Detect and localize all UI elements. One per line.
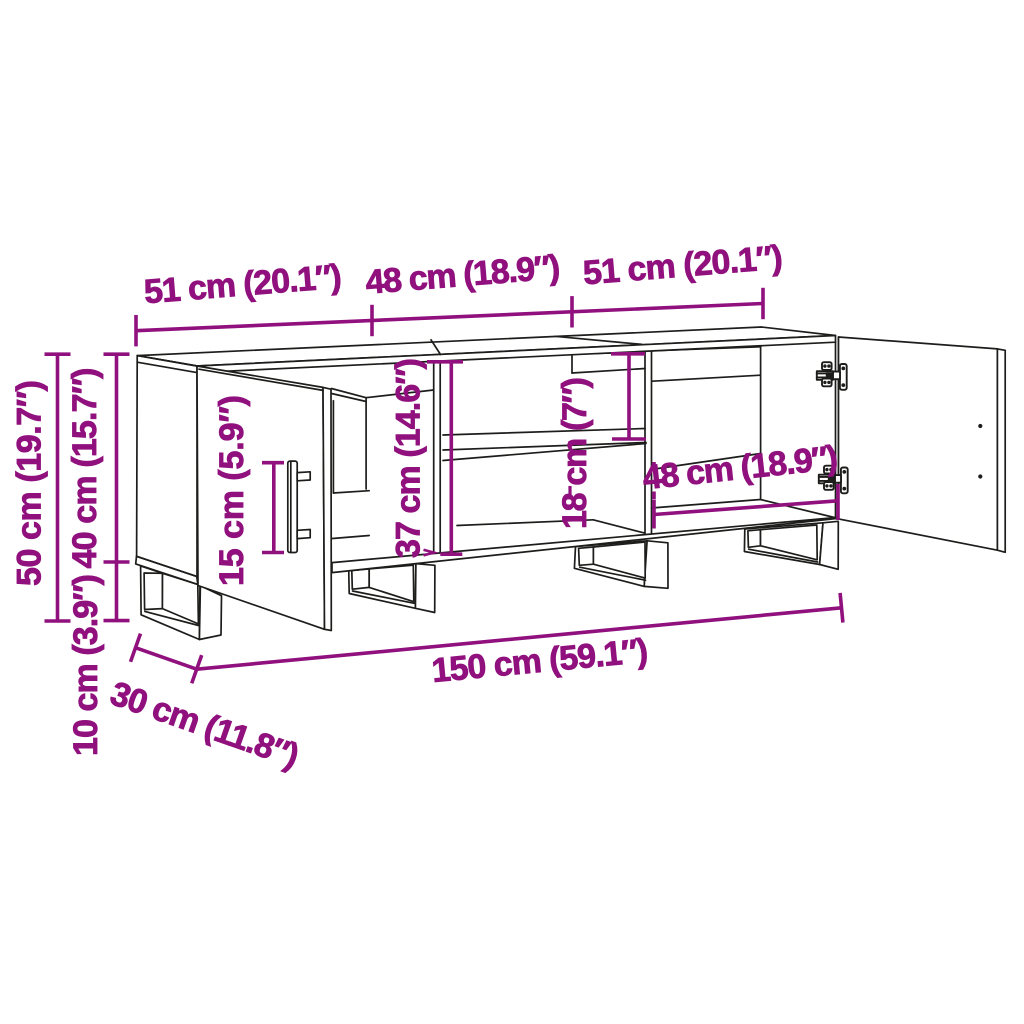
svg-text:15 cm (5.9″): 15 cm (5.9″) (213, 395, 251, 586)
svg-text:37 cm (14.6″): 37 cm (14.6″) (389, 358, 427, 558)
svg-text:40 cm (15.7″): 40 cm (15.7″) (66, 368, 104, 569)
svg-text:18 cm (7″): 18 cm (7″) (556, 377, 594, 529)
svg-text:10 cm (3.9″): 10 cm (3.9″) (67, 574, 105, 756)
svg-text:50 cm (19.7″): 50 cm (19.7″) (10, 380, 48, 586)
